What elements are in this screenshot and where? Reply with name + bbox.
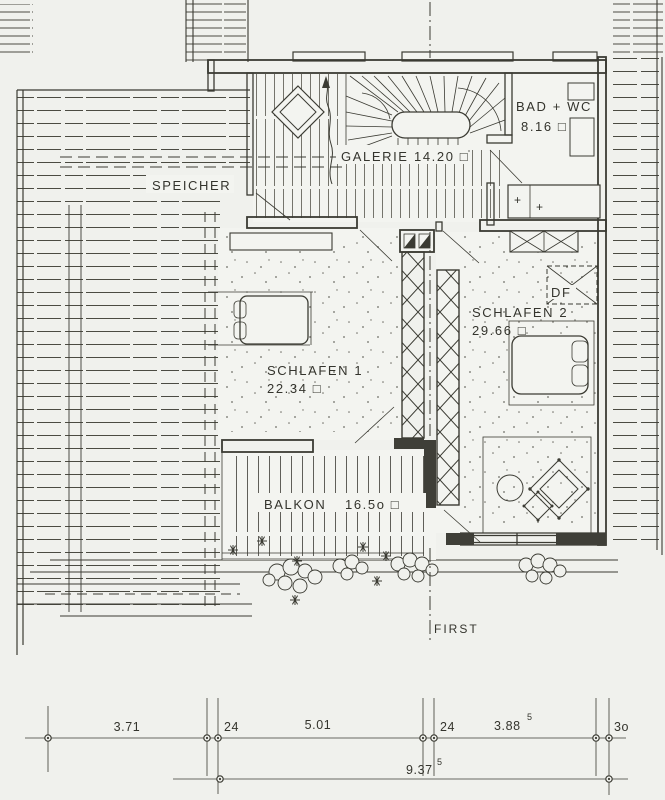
dim-3-88-sup: 5: [527, 712, 532, 722]
flower-box-1: [263, 559, 322, 593]
dim-5-01: 5.01: [305, 718, 332, 732]
dimension-extension-lines: [48, 698, 609, 795]
room-label-schlafen2: SCHLAFEN 2: [472, 305, 568, 320]
dim-total: 9.37: [406, 763, 433, 777]
area-label-bad-wc: 8.16 □: [521, 119, 567, 134]
dim-24-a: 24: [224, 720, 239, 734]
schlafen2-wall-stub: [436, 222, 442, 231]
df-label: DF: [551, 285, 572, 300]
dim-24-b: 24: [440, 720, 455, 734]
dimension-line: 3.71 24 5.01 24 3.88 5 3o 9.37 5: [25, 698, 629, 795]
dim-total-sup: 5: [437, 757, 442, 767]
roof-hatch-left-upper: [17, 90, 250, 166]
bed-schlafen1: [240, 296, 308, 344]
east-wall: [598, 57, 606, 545]
fixture-plus-1: +: [514, 193, 522, 207]
floor-plan-page: DF + +: [0, 0, 665, 800]
ridge-label-first: FIRST: [434, 622, 479, 636]
room-label-balkon: BALKON: [264, 497, 326, 512]
north-wall: [208, 60, 606, 73]
wardrobe-schlafen1: [230, 233, 332, 250]
area-label-schlafen2: 29.66 □: [472, 323, 527, 338]
area-label-balkon: 16.5o □: [345, 497, 400, 512]
flower-box-4: [519, 554, 566, 584]
x-braced-wall-left: [402, 252, 424, 438]
room-label-schlafen1: SCHLAFEN 1: [267, 363, 363, 378]
roof-hatch-top-left-corner: [0, 4, 33, 56]
x-braced-wall-right: [437, 270, 459, 505]
roof-hatch-left-main: [17, 166, 220, 612]
stairwell-opening: [392, 112, 470, 138]
fixture-plus-2: +: [536, 200, 544, 214]
roof-hatch-top-strip: [186, 0, 248, 62]
room-label-galerie: GALERIE: [341, 149, 409, 164]
dim-3-88: 3.88: [494, 719, 521, 733]
roof-hatch-right: [610, 57, 662, 545]
room-label-speicher: SPEICHER: [152, 178, 231, 193]
floor-plan-drawing: DF + +: [0, 0, 665, 800]
dimension-markers: [45, 735, 612, 782]
dim-3-71: 3.71: [114, 720, 141, 734]
room-label-bad-wc: BAD + WC: [516, 99, 592, 114]
area-label-schlafen1: 22.34 □: [267, 381, 322, 396]
roof-hatch-top-right: [613, 0, 663, 57]
dim-3o: 3o: [614, 720, 629, 734]
area-label-galerie: 14.20 □: [414, 149, 469, 164]
chimney-foot: [394, 438, 424, 449]
